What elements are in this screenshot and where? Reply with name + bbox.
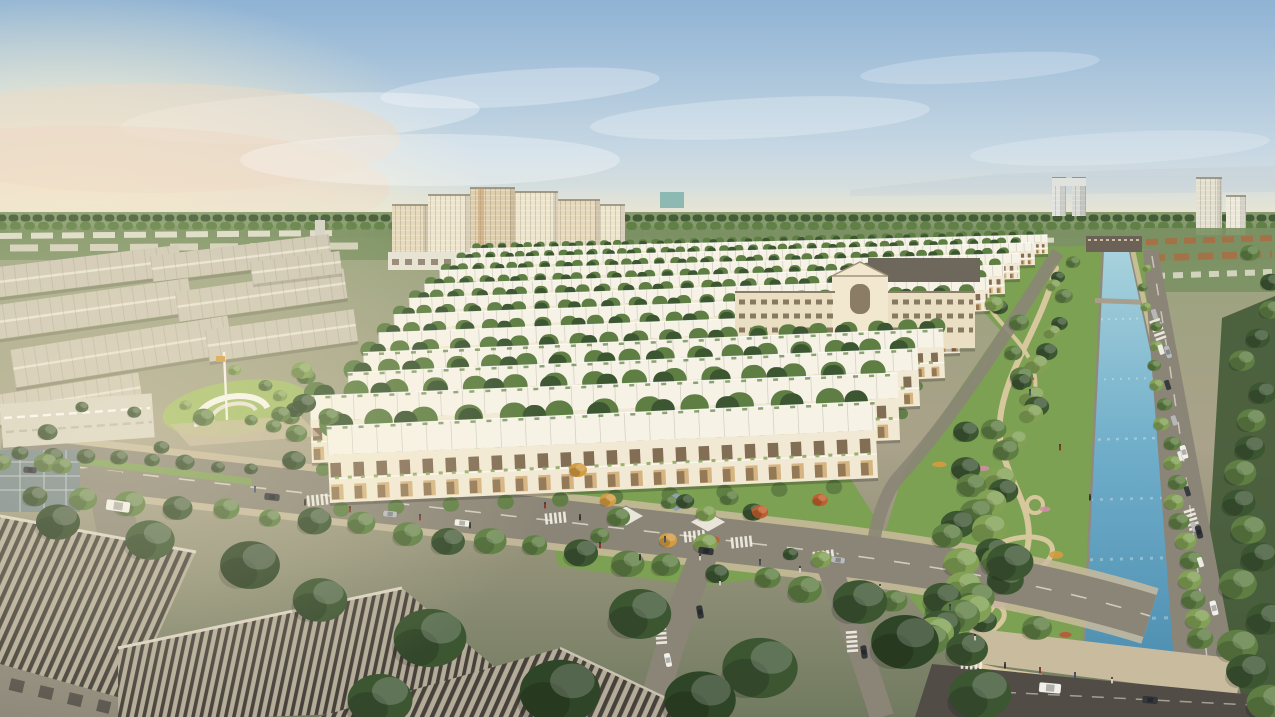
warm-light-overlay <box>0 130 570 717</box>
aerial-township-render <box>0 0 1275 717</box>
render-canvas <box>0 0 1275 717</box>
canal-bridge <box>1086 236 1142 252</box>
